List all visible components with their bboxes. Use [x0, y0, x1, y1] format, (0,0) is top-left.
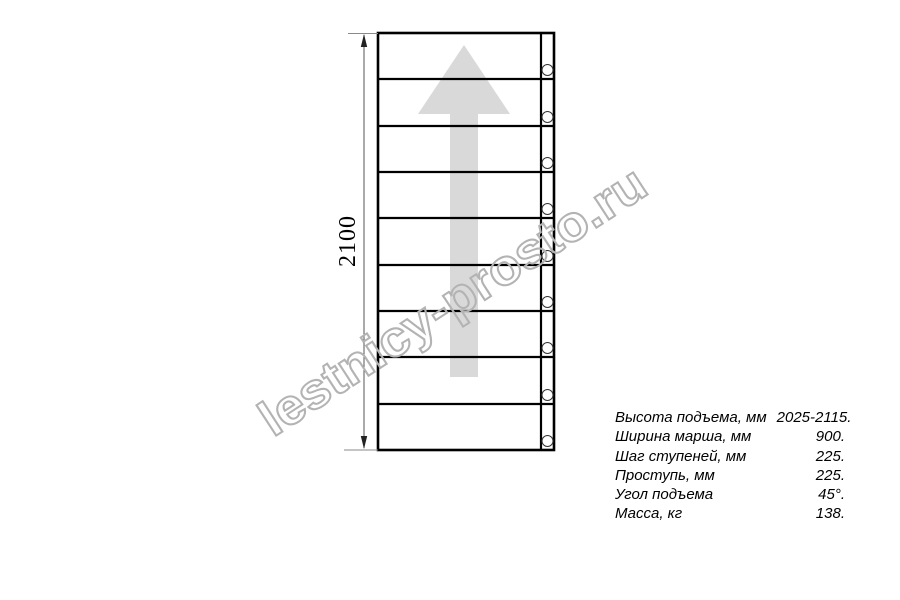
spec-value: 2025-2115. — [777, 408, 852, 427]
fastener-circle — [542, 436, 553, 447]
fastener-circle — [542, 297, 553, 308]
spec-label: Шаг ступеней, мм — [615, 447, 746, 466]
spec-label: Масса, кг — [615, 504, 682, 523]
spec-label: Высота подъема, мм — [615, 408, 767, 427]
spec-row-mass: Масса, кг 138. — [615, 504, 845, 523]
spec-value: 225. — [816, 466, 845, 485]
dimension-arrowhead-bottom — [361, 436, 367, 449]
spec-label: Ширина марша, мм — [615, 427, 751, 446]
fastener-circle — [542, 158, 553, 169]
spec-value: 225. — [816, 447, 845, 466]
fastener-circle — [542, 65, 553, 76]
staircase-drawing-page: 2100 lestnicy-prosto.ru Высота подъема, … — [0, 0, 900, 600]
spec-row-angle: Угол подъема 45°. — [615, 485, 845, 504]
spec-value: 900. — [816, 427, 845, 446]
spec-table: Высота подъема, мм 2025-2115. Ширина мар… — [615, 408, 845, 524]
spec-row-step-pitch: Шаг ступеней, мм 225. — [615, 447, 845, 466]
spec-row-tread: Проступь, мм 225. — [615, 466, 845, 485]
spec-value: 138. — [816, 504, 845, 523]
spec-value: 45°. — [818, 485, 845, 504]
spec-label: Угол подъема — [615, 485, 713, 504]
spec-label: Проступь, мм — [615, 466, 715, 485]
fastener-circle — [542, 112, 553, 123]
fastener-circle — [542, 390, 553, 401]
spec-row-width: Ширина марша, мм 900. — [615, 427, 845, 446]
dimension-arrowhead-top — [361, 34, 367, 47]
dimension-label: 2100 — [335, 215, 361, 267]
fastener-circle — [542, 343, 553, 354]
spec-row-height: Высота подъема, мм 2025-2115. — [615, 408, 845, 427]
